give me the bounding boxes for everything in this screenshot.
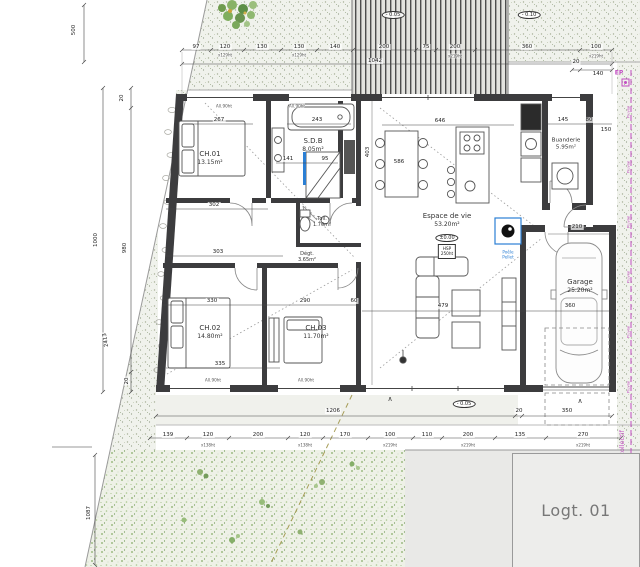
dim-bottom: 100 — [384, 432, 397, 438]
window-ch02 — [170, 385, 230, 392]
dim-top: 75 — [422, 44, 431, 50]
dim-inner: 95 — [321, 156, 330, 162]
dim-top: 200 — [449, 44, 462, 50]
ep-tag: EP — [615, 70, 624, 77]
dim-terrace: 1206 — [325, 408, 341, 414]
dim-top: 130 — [293, 44, 306, 50]
dim-top-right: 140 — [592, 71, 605, 77]
fridge — [521, 104, 541, 130]
dim-left: 500 — [71, 24, 77, 37]
level-marker: - 0.10 — [518, 11, 541, 19]
room-label-toil: Toil. 1.70m² — [313, 216, 331, 228]
dim-bottom: 120 — [299, 432, 312, 438]
dim-top: 360 — [521, 44, 534, 50]
dim-top: 100 — [590, 44, 603, 50]
room-name: Garage — [567, 278, 593, 287]
room-label-ch03: CH.03 11.70m² — [303, 324, 328, 340]
dim-top: 97 — [192, 44, 201, 50]
dim-top-right: 20 — [572, 59, 581, 65]
room-area: 13.15m² — [197, 159, 222, 167]
window-size-tag: x219ht — [461, 443, 475, 448]
dim-bottom: 110 — [421, 432, 434, 438]
dim-top: 120 — [219, 44, 232, 50]
sink — [465, 181, 475, 191]
room-name: CH.02 — [197, 324, 222, 333]
room-area: 3.65m² — [298, 257, 316, 263]
room-area: 1.70m² — [313, 222, 331, 228]
entry-door-gap — [586, 205, 593, 227]
sill-height-tag: All.90ht — [205, 378, 221, 383]
room-area: 14.80m² — [197, 333, 222, 341]
room-name: S.D.B — [302, 137, 324, 146]
wall-buanderie-west — [542, 101, 548, 210]
dim-terrace: 20 — [515, 408, 524, 414]
room-label-ch02: CH.02 14.80m² — [197, 324, 222, 340]
dim-inner: 646 — [434, 118, 447, 124]
dim-inner: 335 — [214, 361, 227, 367]
room-label-sdb: S.D.B 8.05m² — [302, 137, 324, 153]
room-area: 5.95m² — [552, 144, 581, 151]
duct — [344, 140, 355, 174]
dim-inner: 60 — [350, 298, 359, 304]
ep-line-tag: Pluvial — [626, 381, 631, 393]
room-area: 25.20m² — [567, 287, 593, 295]
dim-bottom: 200 — [462, 432, 475, 438]
dim-left: 1000 — [93, 232, 99, 248]
vanity — [272, 128, 284, 172]
bed-ch01 — [179, 121, 245, 176]
dim-bottom: 135 — [514, 432, 527, 438]
washing-machine — [552, 163, 578, 189]
garage-door — [543, 385, 609, 392]
dim-bottom: 120 — [202, 432, 215, 438]
closet-ch03 — [269, 318, 279, 362]
dim-inner: 290 — [299, 298, 312, 304]
unit-box: Logt. 01 — [512, 453, 640, 567]
dim-left: 1087 — [86, 505, 92, 521]
entry-marker: ∧ — [577, 397, 582, 405]
dim-inner: 267 — [213, 117, 226, 123]
window-size-tag: x138ht — [201, 443, 215, 448]
window-size-tag: x129ht — [292, 53, 306, 58]
dim-inner: 80 — [585, 117, 594, 123]
sill-height-tag: All.90ht — [289, 104, 305, 109]
dim-inner: 141 — [282, 156, 295, 162]
room-label-vie: Espace de vie 53.20m² — [423, 212, 472, 228]
dim-inner: 303 — [212, 249, 225, 255]
oven — [526, 139, 537, 150]
ceiling-height-box: HSP 250ht — [438, 244, 456, 259]
room-area: 53.20m² — [423, 221, 472, 229]
window-ch03 — [278, 385, 340, 392]
floor-plan-sheet: 97 120 130 130 140 200 75 200 360 100 x1… — [0, 0, 640, 567]
wall-garage-west — [520, 225, 526, 385]
ep-line-tag: Pluvial — [626, 326, 631, 338]
room-label-garage: Garage 25.20m² — [567, 278, 593, 294]
level-marker: - 0.05 — [382, 11, 405, 19]
dim-left: 20 — [119, 94, 125, 103]
window-size-tag: x219ht — [576, 443, 590, 448]
window-size-tag: x138ht — [298, 443, 312, 448]
dim-garage-width: 360 — [564, 303, 577, 309]
dim-bottom: 170 — [339, 432, 352, 438]
stove-line2: Pellet — [502, 255, 514, 260]
room-name: CH.01 — [197, 150, 222, 159]
room-label-ch01: CH.01 13.15m² — [197, 150, 222, 166]
sill-height-tag: All.90ht — [216, 104, 232, 109]
dim-inner: 210 — [571, 224, 584, 230]
ep-line-tag: Pluvial — [626, 106, 631, 118]
dim-top: 200 — [378, 44, 391, 50]
dim-inner: 586 — [393, 159, 406, 165]
pellet-stove — [495, 218, 521, 244]
sliding-door-living — [366, 385, 504, 392]
dim-left: 980 — [122, 242, 128, 255]
window-buanderie — [552, 94, 580, 101]
window-size-tag: x129ht — [218, 53, 232, 58]
dim-bottom: 139 — [162, 432, 175, 438]
dim-bottom: 200 — [252, 432, 265, 438]
dim-top-total: 1042 — [367, 58, 383, 64]
ep-line-tag: Pluvial — [626, 161, 631, 173]
dim-inner: 403 — [365, 146, 371, 159]
dim-bottom: 270 — [577, 432, 590, 438]
wall-east-garage — [609, 225, 616, 392]
window-size-tag: x219ht — [383, 443, 397, 448]
car-top-view — [551, 243, 607, 383]
tall-cabinet — [502, 278, 516, 350]
room-label-degt: Dégt. 3.65m² — [298, 251, 316, 263]
dim-terrace: 350 — [561, 408, 574, 414]
sill-height-tag: All.90ht — [298, 378, 314, 383]
entry-marker: ∧ — [387, 395, 392, 403]
window-sdb — [289, 94, 351, 101]
dim-inner: 479 — [437, 303, 450, 309]
shower-glass — [303, 152, 306, 185]
room-label-buanderie: Buanderie 5.95m² — [552, 137, 581, 150]
kitchen-tall-units — [521, 104, 541, 182]
unit-label: Logt. 01 — [541, 501, 610, 520]
dim-top: 130 — [256, 44, 269, 50]
dim-inner: 243 — [311, 117, 324, 123]
room-area: 11.70m² — [303, 333, 328, 341]
window-kitchen — [382, 94, 474, 101]
dim-top: 140 — [329, 44, 342, 50]
dim-left: 20 — [124, 377, 130, 386]
level-marker: - 0.05 — [453, 400, 476, 408]
ep-line-tag: Pluvial — [626, 216, 631, 228]
room-name: CH.03 — [303, 324, 328, 333]
window-size-tag: x219ht — [589, 54, 603, 59]
dim-inner: 150 — [600, 127, 613, 133]
window-size-tag: x219ht — [448, 54, 462, 59]
dim-inner: 145 — [557, 117, 570, 123]
ep-line-tag: Pluvial — [626, 271, 631, 283]
room-name: Buanderie — [552, 137, 581, 144]
dim-inner: 302 — [208, 202, 221, 208]
room-name: Espace de vie — [423, 212, 472, 221]
dim-inner: 330 — [206, 298, 219, 304]
pellet-stove-label: Poêle Pellet — [502, 250, 514, 261]
window-ch01 — [187, 94, 253, 101]
hsp-value: 250ht — [441, 251, 453, 256]
room-area: 8.05m² — [302, 146, 324, 154]
